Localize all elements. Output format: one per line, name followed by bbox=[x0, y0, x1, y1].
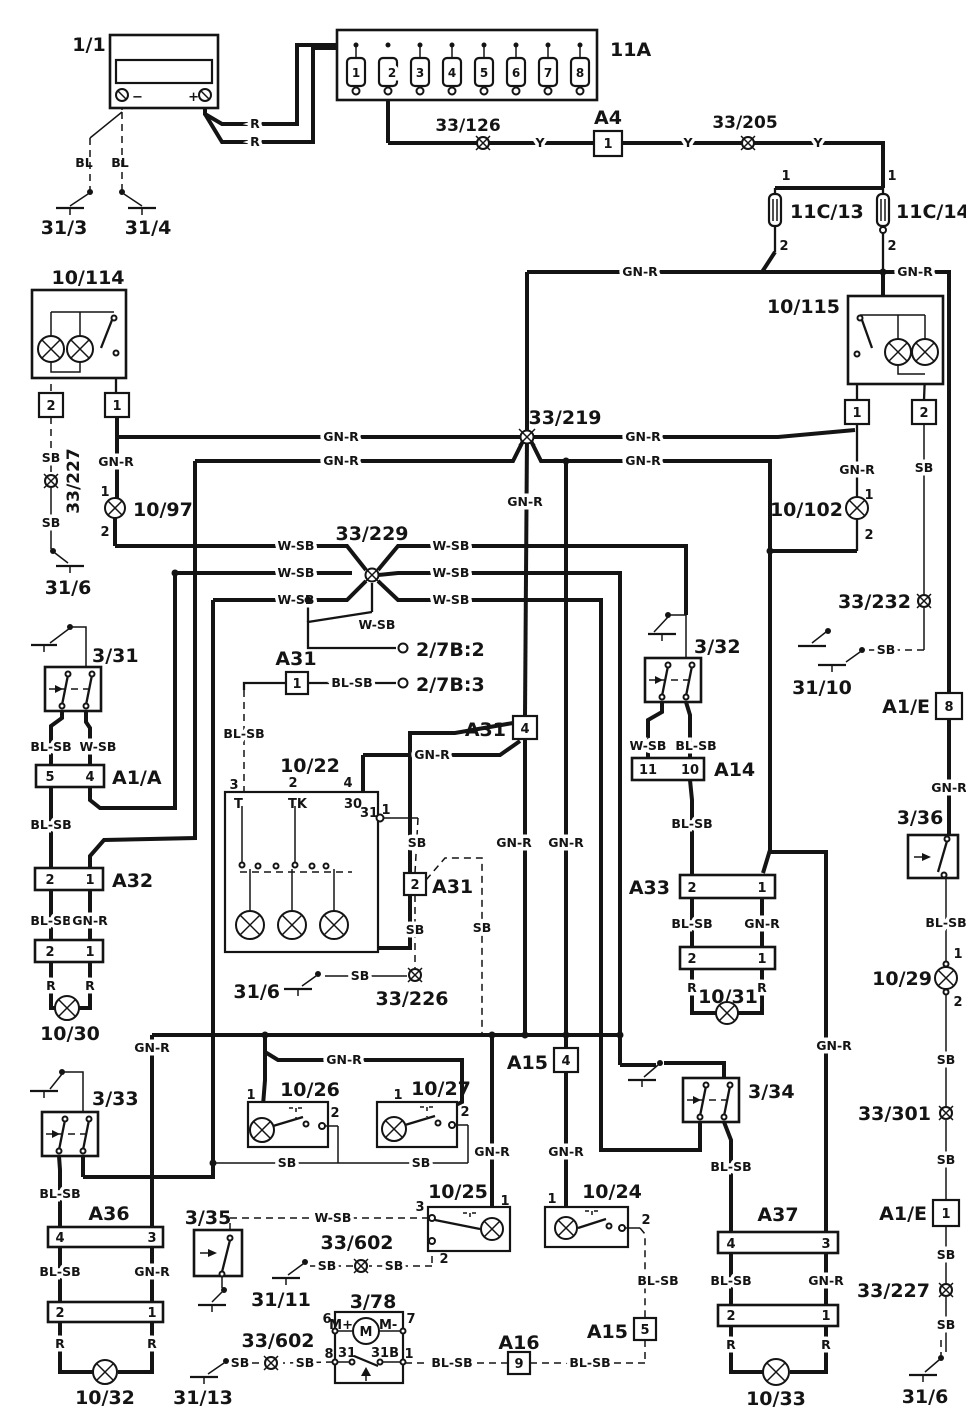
svg-text:31/13: 31/13 bbox=[173, 1387, 233, 1409]
gnr-1024: GN-R bbox=[548, 1144, 584, 1159]
bulb-11c13: 1 2 11C/13 bbox=[769, 169, 864, 254]
svg-text:M: M bbox=[360, 1325, 373, 1340]
svg-text:A31: A31 bbox=[275, 648, 316, 670]
ground-31-10: 31/10 bbox=[792, 647, 865, 699]
svg-text:3/78: 3/78 bbox=[350, 1291, 397, 1313]
wire-y-2: Y bbox=[682, 135, 693, 150]
svg-text:10/24: 10/24 bbox=[582, 1181, 642, 1203]
r-1031a: R bbox=[687, 980, 697, 995]
svg-text:1: 1 bbox=[85, 873, 94, 888]
ground-31-6-right: 31/6 bbox=[902, 1355, 949, 1408]
gnr-115: GN-R bbox=[839, 462, 875, 477]
ground-31-3-label: 31/3 bbox=[41, 217, 88, 239]
svg-text:2: 2 bbox=[953, 995, 962, 1010]
svg-text:2: 2 bbox=[779, 239, 788, 254]
r-1032b: R bbox=[147, 1336, 157, 1351]
svg-text:3/34: 3/34 bbox=[748, 1081, 795, 1103]
svg-text:10/33: 10/33 bbox=[746, 1388, 806, 1409]
connector-a15-4: 4 A15 bbox=[507, 1048, 578, 1074]
sb-r1: SB bbox=[937, 1052, 956, 1067]
svg-text:2: 2 bbox=[388, 66, 396, 80]
svg-text:3/36: 3/36 bbox=[897, 807, 944, 829]
svg-text:33/219: 33/219 bbox=[528, 407, 601, 429]
connector-a36-lower: 2 1 bbox=[48, 1302, 163, 1322]
connector-a1e-1: 1 A1/E bbox=[879, 1200, 959, 1226]
blsb-27b3: BL-SB bbox=[331, 675, 372, 690]
svg-text:A15: A15 bbox=[587, 1321, 628, 1343]
connector-a36: A36 4 3 bbox=[48, 1203, 163, 1247]
svg-text:4: 4 bbox=[726, 1237, 735, 1252]
svg-text:11: 11 bbox=[639, 763, 657, 778]
switch-3-32: 3/32 bbox=[645, 612, 741, 702]
connector-a1e-8: 8 A1/E bbox=[882, 693, 962, 719]
svg-text:2: 2 bbox=[46, 399, 55, 414]
wsb-332: W-SB bbox=[630, 738, 667, 753]
sb-602a: SB bbox=[385, 1258, 404, 1273]
lamp-10-24: 10/24 1 2 bbox=[545, 1181, 651, 1247]
connector-a15-5: 5 A15 bbox=[587, 1318, 656, 1343]
svg-text:2: 2 bbox=[410, 878, 419, 893]
svg-text:8: 8 bbox=[944, 700, 953, 715]
bulb-10-29: 1 2 10/29 bbox=[872, 947, 962, 1010]
svg-text:2: 2 bbox=[330, 1106, 339, 1121]
sb-1026: SB bbox=[278, 1155, 297, 1170]
svg-text:1: 1 bbox=[852, 406, 861, 421]
svg-text:1: 1 bbox=[757, 881, 766, 896]
svg-text:4: 4 bbox=[343, 776, 352, 791]
svg-text:A16: A16 bbox=[498, 1332, 539, 1354]
r-1031b: R bbox=[757, 980, 767, 995]
svg-text:33/227: 33/227 bbox=[64, 448, 84, 513]
svg-text:3: 3 bbox=[229, 778, 238, 793]
svg-text:A14: A14 bbox=[714, 759, 755, 781]
wiring-diagram: − + 1/1 31/3 31/4 BL BL R R 1 2 3 4 5 6 … bbox=[0, 0, 966, 1409]
wsb-331: W-SB bbox=[80, 739, 117, 754]
wire-bl-2: BL bbox=[111, 155, 129, 170]
svg-text:31/6: 31/6 bbox=[902, 1386, 949, 1408]
gnr-1022: GN-R bbox=[414, 747, 450, 762]
wsb-6: W-SB bbox=[433, 592, 470, 607]
svg-text:A15: A15 bbox=[507, 1052, 548, 1074]
blsb-334: BL-SB bbox=[710, 1159, 751, 1174]
connector-a31-1: 1 A31 bbox=[275, 648, 316, 694]
svg-text:TK: TK bbox=[288, 797, 308, 812]
ground-31-11: 31/11 bbox=[251, 1259, 311, 1311]
sb-232: SB bbox=[877, 642, 896, 657]
gnr-trunk3: GN-R bbox=[548, 835, 584, 850]
svg-text:1: 1 bbox=[393, 1088, 402, 1103]
svg-text:10/102: 10/102 bbox=[770, 499, 843, 521]
blsb-a32b: BL-SB bbox=[30, 913, 71, 928]
blsb-336: BL-SB bbox=[925, 915, 966, 930]
terminal-27b2-icon bbox=[399, 644, 408, 653]
r-1033a: R bbox=[726, 1337, 736, 1352]
svg-text:2: 2 bbox=[687, 952, 696, 967]
svg-text:3: 3 bbox=[147, 1231, 156, 1246]
connector-a14: 11 10 A14 bbox=[632, 758, 755, 781]
gnr-a37: GN-R bbox=[808, 1273, 844, 1288]
svg-text:10/115: 10/115 bbox=[767, 296, 840, 318]
ground-31-4-label: 31/4 bbox=[125, 217, 172, 239]
svg-text:1: 1 bbox=[500, 1194, 509, 1209]
svg-text:1: 1 bbox=[821, 1309, 830, 1324]
wsb-5: W-SB bbox=[433, 565, 470, 580]
connector-a31-2: 2 A31 bbox=[404, 873, 473, 898]
svg-text:7: 7 bbox=[544, 66, 552, 80]
battery-plus: + bbox=[188, 90, 199, 105]
connector-a31-4: 4 A31 bbox=[465, 716, 537, 741]
svg-text:1: 1 bbox=[292, 677, 301, 692]
blsb-a16a: BL-SB bbox=[431, 1355, 472, 1370]
gnr-437l: GN-R bbox=[323, 429, 359, 444]
svg-text:A31: A31 bbox=[465, 719, 506, 741]
r-1033b: R bbox=[821, 1337, 831, 1352]
svg-text:10: 10 bbox=[681, 763, 699, 778]
gnr-1025: GN-R bbox=[474, 1144, 510, 1159]
svg-text:1: 1 bbox=[941, 1207, 950, 1222]
wire-bl-1: BL bbox=[75, 155, 93, 170]
wire-r-1: R bbox=[250, 116, 260, 131]
blsb-331: BL-SB bbox=[30, 739, 71, 754]
connector-a32: 2 1 A32 bbox=[35, 868, 153, 892]
blsb-1024: BL-SB bbox=[637, 1273, 678, 1288]
bulb-10-32: 10/32 bbox=[75, 1360, 135, 1409]
svg-text:5: 5 bbox=[480, 66, 488, 80]
svg-text:6: 6 bbox=[512, 66, 520, 80]
sb-226: SB bbox=[351, 968, 370, 983]
sb-602c: SB bbox=[296, 1355, 315, 1370]
svg-text:A36: A36 bbox=[88, 1203, 129, 1225]
pin-10-114-1: 1 bbox=[105, 393, 129, 417]
svg-text:33/301: 33/301 bbox=[858, 1103, 931, 1125]
sb-a312a: SB bbox=[408, 835, 427, 850]
svg-text:A1/E: A1/E bbox=[879, 1203, 927, 1225]
ground-31-6-left: 31/6 bbox=[45, 548, 92, 599]
svg-text:A1/E: A1/E bbox=[882, 696, 930, 718]
svg-text:2: 2 bbox=[460, 1105, 469, 1120]
blsb-a36: BL-SB bbox=[39, 1264, 80, 1279]
svg-text:8: 8 bbox=[324, 1347, 333, 1362]
lamp-10-115: 10/115 bbox=[767, 296, 943, 384]
svg-text:4: 4 bbox=[85, 770, 94, 785]
wire-y-3: Y bbox=[812, 135, 823, 150]
sb-115: SB bbox=[915, 460, 934, 475]
sb-1027: SB bbox=[412, 1155, 431, 1170]
svg-text:11C/14: 11C/14 bbox=[896, 201, 966, 223]
ground-31-3: 31/3 bbox=[41, 189, 93, 239]
r-1030b: R bbox=[85, 978, 95, 993]
svg-text:4: 4 bbox=[520, 722, 529, 737]
svg-text:10/27: 10/27 bbox=[411, 1078, 471, 1100]
svg-text:1: 1 bbox=[603, 137, 612, 152]
svg-text:33/229: 33/229 bbox=[335, 523, 408, 545]
connector-a37-lower: 2 1 bbox=[718, 1305, 838, 1326]
wiring-heavy bbox=[51, 45, 949, 1372]
svg-text:A33: A33 bbox=[629, 877, 670, 899]
wire-y-1: Y bbox=[534, 135, 545, 150]
gnr-a36: GN-R bbox=[134, 1264, 170, 1279]
svg-text:10/32: 10/32 bbox=[75, 1387, 135, 1409]
svg-text:3/31: 3/31 bbox=[92, 645, 139, 667]
terminal-27b2: 2/7B:2 bbox=[416, 639, 485, 661]
sb-r4: SB bbox=[937, 1317, 956, 1332]
splice-33-219: 33/219 bbox=[519, 407, 602, 445]
wire-sb-l1: SB bbox=[42, 450, 61, 465]
sb-dash482: SB bbox=[473, 920, 492, 935]
svg-text:33/602: 33/602 bbox=[241, 1330, 314, 1352]
diagram-canvas: − + 1/1 31/3 31/4 BL BL R R 1 2 3 4 5 6 … bbox=[0, 0, 966, 1409]
svg-text:10/22: 10/22 bbox=[280, 755, 340, 777]
svg-text:10/114: 10/114 bbox=[51, 267, 124, 289]
gnr-a33: GN-R bbox=[744, 916, 780, 931]
connector-a33: 2 1 A33 bbox=[629, 875, 775, 899]
svg-text:31B: 31B bbox=[371, 1346, 399, 1361]
svg-text:33/227: 33/227 bbox=[857, 1280, 930, 1302]
svg-text:4: 4 bbox=[561, 1054, 570, 1069]
switch-3-33: 3/33 bbox=[30, 1069, 139, 1156]
svg-text:2: 2 bbox=[641, 1213, 650, 1228]
lamp-10-27: 10/27 1 2 bbox=[377, 1078, 471, 1147]
fusebox-label: 11A bbox=[610, 39, 651, 61]
svg-text:2: 2 bbox=[288, 776, 297, 791]
svg-text:A32: A32 bbox=[112, 870, 153, 892]
svg-text:2: 2 bbox=[919, 406, 928, 421]
connector-a32-lower: 2 1 bbox=[35, 940, 103, 962]
blsb-a33: BL-SB bbox=[671, 816, 712, 831]
svg-text:2: 2 bbox=[45, 873, 54, 888]
terminal-27b3-icon bbox=[399, 679, 408, 688]
svg-text:3/35: 3/35 bbox=[185, 1207, 232, 1229]
bulb-10-33: 10/33 bbox=[746, 1359, 806, 1409]
pin-10-114-2: 2 bbox=[39, 393, 63, 417]
gnr-461l: GN-R bbox=[323, 453, 359, 468]
svg-text:9: 9 bbox=[514, 1357, 523, 1372]
bulb-11c14: 1 2 11C/14 bbox=[877, 169, 966, 272]
connector-a37: A37 4 3 bbox=[718, 1204, 838, 1253]
gnr-a1e: GN-R bbox=[931, 780, 966, 795]
svg-text:33/602: 33/602 bbox=[320, 1232, 393, 1254]
r-1030a: R bbox=[46, 978, 56, 993]
wsb-2: W-SB bbox=[278, 565, 315, 580]
ground-31-4: 31/4 bbox=[119, 189, 171, 239]
gnr-a32: GN-R bbox=[72, 913, 108, 928]
svg-text:11C/13: 11C/13 bbox=[790, 201, 864, 223]
svg-text:33/232: 33/232 bbox=[838, 591, 911, 613]
splice-33-227-right: 33/227 bbox=[857, 1280, 953, 1302]
svg-text:2: 2 bbox=[45, 945, 54, 960]
blsb-333: BL-SB bbox=[39, 1186, 80, 1201]
svg-text:A37: A37 bbox=[757, 1204, 798, 1226]
blsb-a33b: BL-SB bbox=[671, 916, 712, 931]
wire-gnr-top-l: GN-R bbox=[622, 264, 658, 279]
svg-text:1: 1 bbox=[147, 1306, 156, 1321]
svg-text:10/97: 10/97 bbox=[133, 499, 193, 521]
svg-text:1: 1 bbox=[953, 947, 962, 962]
ground-31-13: 31/13 bbox=[173, 1358, 233, 1409]
svg-text:31/10: 31/10 bbox=[792, 677, 852, 699]
svg-text:2: 2 bbox=[100, 525, 109, 540]
svg-text:33/126: 33/126 bbox=[435, 116, 500, 136]
svg-text:8: 8 bbox=[576, 66, 584, 80]
lamp-10-25: 10/25 3 1 2 bbox=[415, 1181, 510, 1267]
bulb-10-31: 10/31 bbox=[698, 986, 758, 1024]
battery-minus: − bbox=[132, 90, 143, 105]
svg-text:1: 1 bbox=[85, 945, 94, 960]
splice-33-226: 33/226 bbox=[375, 968, 448, 1010]
blsb-a16b: BL-SB bbox=[569, 1355, 610, 1370]
blsb-332: BL-SB bbox=[675, 738, 716, 753]
wire-sb-l2: SB bbox=[42, 515, 61, 530]
blsb-a32: BL-SB bbox=[30, 817, 71, 832]
sb-602d: SB bbox=[231, 1355, 250, 1370]
gnr-1027: GN-R bbox=[326, 1052, 362, 1067]
svg-text:31/11: 31/11 bbox=[251, 1289, 311, 1311]
battery: − + 1/1 bbox=[72, 34, 218, 108]
switch-3-34: 3/34 bbox=[628, 1060, 795, 1122]
motor-3-78: 3/78 M M+ M- 6 7 8 31 31B 1 bbox=[322, 1291, 415, 1383]
svg-text:1: 1 bbox=[781, 169, 790, 184]
switch-3-31: 3/31 bbox=[31, 624, 139, 711]
svg-text:1: 1 bbox=[112, 399, 121, 414]
gnr-a36top: GN-R bbox=[134, 1040, 170, 1055]
wsb-4: W-SB bbox=[433, 538, 470, 553]
svg-text:1: 1 bbox=[404, 1347, 413, 1362]
r-1032a: R bbox=[55, 1336, 65, 1351]
lamp-cluster-10-22: 10/22 3 2 4 T TK 30 31 1 bbox=[225, 755, 418, 952]
svg-text:31: 31 bbox=[338, 1346, 356, 1361]
svg-text:2: 2 bbox=[726, 1309, 735, 1324]
wsb-7: W-SB bbox=[359, 617, 396, 632]
wsb-1025: W-SB bbox=[315, 1210, 352, 1225]
lamp-10-114: 10/114 bbox=[32, 267, 126, 378]
connector-a33-lower: 2 1 bbox=[680, 947, 775, 969]
svg-text:5: 5 bbox=[640, 1323, 649, 1338]
ground-31-6-mid: 31/6 bbox=[233, 971, 321, 1003]
ground-31-10-label: 31/10 bbox=[798, 628, 831, 646]
svg-text:10/29: 10/29 bbox=[872, 968, 932, 990]
svg-text:3/33: 3/33 bbox=[92, 1088, 139, 1110]
svg-text:6: 6 bbox=[322, 1312, 331, 1327]
svg-text:5: 5 bbox=[45, 770, 54, 785]
svg-text:3/32: 3/32 bbox=[694, 636, 741, 658]
svg-text:1: 1 bbox=[352, 66, 360, 80]
wire-gnr-114: GN-R bbox=[98, 454, 134, 469]
connector-a1a: 5 4 A1/A bbox=[36, 765, 162, 789]
sb-602b: SB bbox=[318, 1258, 337, 1273]
lamp-10-26: 10/26 1 2 bbox=[246, 1079, 339, 1147]
splice-33-232: 33/232 bbox=[838, 591, 931, 613]
splice-33-301: 33/301 bbox=[858, 1103, 953, 1125]
svg-text:A1/A: A1/A bbox=[112, 767, 162, 789]
gnr-461r: GN-R bbox=[625, 453, 661, 468]
svg-text:3: 3 bbox=[415, 1200, 424, 1215]
svg-text:7: 7 bbox=[406, 1312, 415, 1327]
svg-text:3: 3 bbox=[416, 66, 424, 80]
svg-text:2: 2 bbox=[687, 881, 696, 896]
gnr-437r: GN-R bbox=[625, 429, 661, 444]
sb-r3: SB bbox=[937, 1247, 956, 1262]
svg-text:1: 1 bbox=[887, 169, 896, 184]
svg-text:1: 1 bbox=[757, 952, 766, 967]
gnr-trunk1: GN-R bbox=[507, 494, 543, 509]
svg-text:2: 2 bbox=[55, 1306, 64, 1321]
svg-text:33/205: 33/205 bbox=[712, 113, 777, 133]
fusebox: 1 2 3 4 5 6 7 8 11A bbox=[337, 30, 651, 100]
blsb-a31: BL-SB bbox=[223, 726, 264, 741]
pin-10-115-1: 1 bbox=[845, 400, 869, 424]
svg-text:10/30: 10/30 bbox=[40, 1023, 100, 1045]
connector-a4: 1 A4 bbox=[594, 107, 622, 156]
svg-text:33/226: 33/226 bbox=[375, 988, 448, 1010]
wire-gnr-top-r: GN-R bbox=[897, 264, 933, 279]
svg-text:2: 2 bbox=[864, 528, 873, 543]
gnr-trunk2: GN-R bbox=[496, 835, 532, 850]
svg-text:1: 1 bbox=[864, 488, 873, 503]
svg-text:1: 1 bbox=[547, 1192, 556, 1207]
svg-text:31: 31 bbox=[360, 806, 378, 821]
gnr-a37top: GN-R bbox=[816, 1038, 852, 1053]
svg-text:1: 1 bbox=[100, 485, 109, 500]
svg-text:10/26: 10/26 bbox=[280, 1079, 340, 1101]
blsb-a37: BL-SB bbox=[710, 1273, 751, 1288]
connector-a16-9: A16 9 bbox=[498, 1332, 539, 1374]
svg-text:4: 4 bbox=[55, 1231, 64, 1246]
sb-a312b: SB bbox=[406, 922, 425, 937]
sb-r2: SB bbox=[937, 1152, 956, 1167]
svg-text:3: 3 bbox=[821, 1237, 830, 1252]
wire-r-2: R bbox=[250, 134, 260, 149]
battery-label: 1/1 bbox=[72, 34, 105, 56]
switch-3-35: 3/35 bbox=[185, 1207, 242, 1312]
svg-text:10/25: 10/25 bbox=[428, 1181, 488, 1203]
svg-text:2: 2 bbox=[439, 1252, 448, 1267]
svg-text:A31: A31 bbox=[432, 876, 473, 898]
svg-text:4: 4 bbox=[448, 66, 456, 80]
svg-text:31/6: 31/6 bbox=[233, 981, 280, 1003]
svg-text:1: 1 bbox=[246, 1088, 255, 1103]
wsb-1: W-SB bbox=[278, 538, 315, 553]
pin-10-115-2: 2 bbox=[912, 400, 936, 424]
svg-text:31/6: 31/6 bbox=[45, 577, 92, 599]
terminal-27b3: 2/7B:3 bbox=[416, 674, 485, 696]
svg-text:2: 2 bbox=[887, 239, 896, 254]
svg-text:A4: A4 bbox=[594, 107, 622, 129]
